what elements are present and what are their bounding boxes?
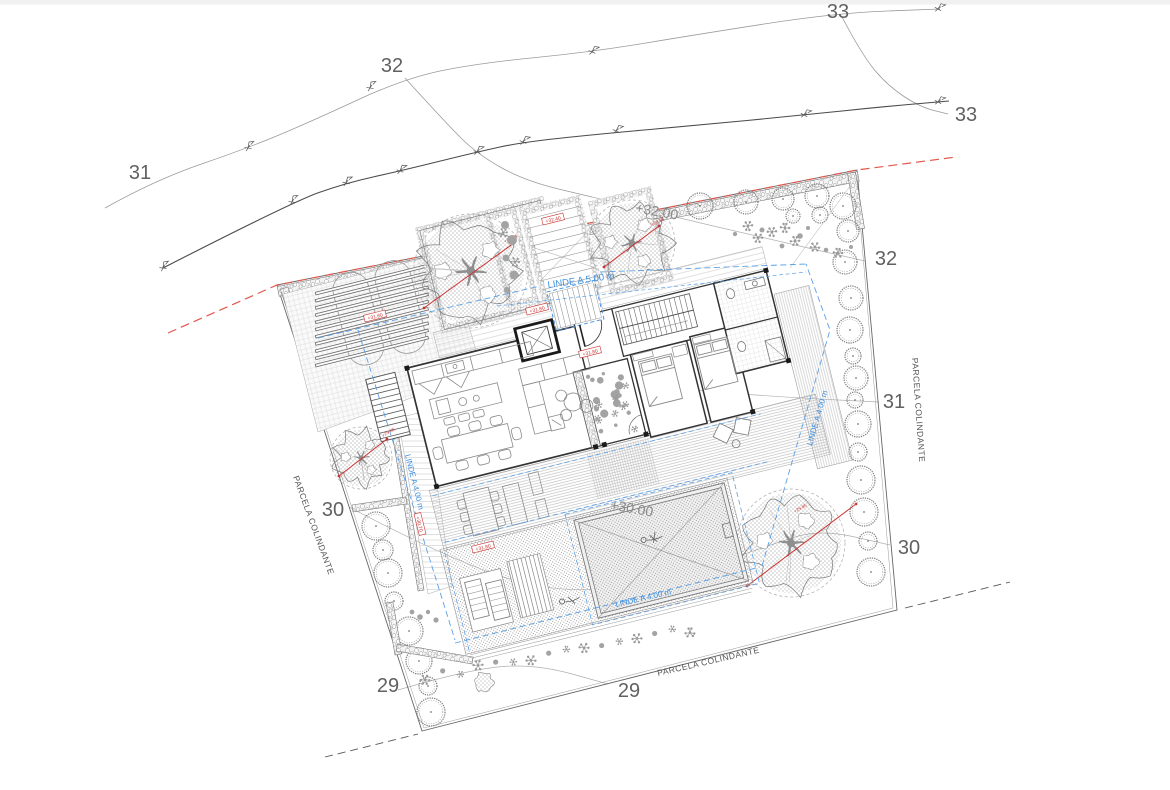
svg-text:31: 31 — [129, 162, 151, 184]
svg-text:32: 32 — [875, 248, 897, 270]
svg-text:32: 32 — [381, 55, 403, 77]
svg-text:33: 33 — [827, 1, 849, 23]
svg-text:29: 29 — [377, 675, 399, 697]
svg-text:30: 30 — [898, 537, 920, 559]
svg-text:29: 29 — [618, 680, 640, 702]
svg-text:30: 30 — [322, 499, 344, 521]
svg-text:33: 33 — [955, 104, 977, 126]
svg-text:31: 31 — [883, 391, 905, 413]
